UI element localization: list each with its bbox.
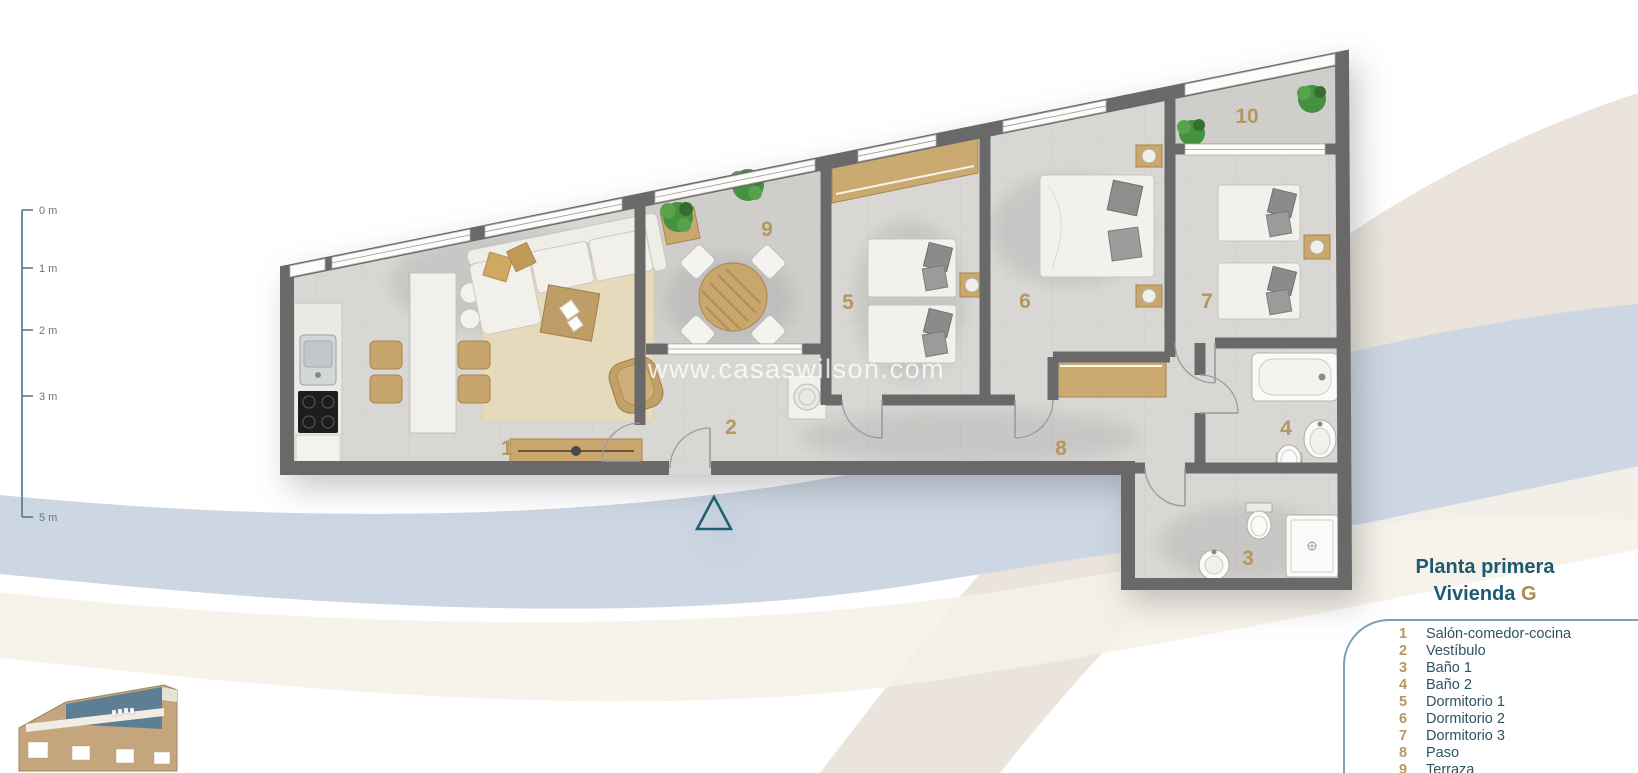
room-label-1: 1 <box>501 437 513 460</box>
legend-item: 5 Dormitorio 1 <box>1399 694 1571 711</box>
scale-label-1: 1 m <box>39 263 57 275</box>
page-title: Planta primera Vivienda G <box>1352 554 1618 608</box>
legend-item: 2 Vestíbulo <box>1399 643 1571 660</box>
shower <box>1286 515 1338 577</box>
legend-item: 3 Baño 1 <box>1399 660 1571 677</box>
pedestal-sink <box>1199 550 1229 581</box>
kitchen-sink <box>300 335 336 385</box>
bathtub <box>1252 353 1338 401</box>
legend: 1 Salón-comedor-cocina 2 Vestíbulo 3 Bañ… <box>1399 626 1571 773</box>
stove <box>298 391 338 433</box>
room-label-8: 8 <box>1055 437 1067 460</box>
legend-item: 8 Paso <box>1399 745 1571 762</box>
scale-bar: 0 m 1 m 2 m 3 m 5 m <box>8 196 78 536</box>
scale-label-0: 0 m <box>39 205 57 217</box>
tv-console <box>510 439 642 463</box>
hall-closet <box>1056 361 1166 397</box>
toilet <box>1246 503 1272 539</box>
nightstand <box>1136 285 1162 307</box>
scale-label-5: 5 m <box>39 512 57 524</box>
room-label-2: 2 <box>725 416 737 439</box>
scale-label-2: 2 m <box>39 325 57 337</box>
unit-label: Vivienda <box>1433 583 1515 605</box>
unit-letter: G <box>1521 583 1537 605</box>
floor-plan: 1 2 3 4 5 6 7 8 9 10 <box>270 45 1360 590</box>
nightstand <box>1304 235 1330 259</box>
coffee-table <box>540 285 600 341</box>
legend-item: 1 Salón-comedor-cocina <box>1399 626 1571 643</box>
legend-item: 9 Terraza <box>1399 762 1571 773</box>
room-label-10: 10 <box>1235 105 1258 128</box>
nightstand <box>1136 145 1162 167</box>
bed-double <box>1040 175 1154 277</box>
watermark: www.casaswilson.com <box>648 354 945 385</box>
bed-single <box>1218 263 1300 319</box>
room-label-3: 3 <box>1242 547 1254 570</box>
kitchen-island <box>410 273 456 433</box>
scale-ticks <box>22 210 33 517</box>
bed-single <box>868 239 956 297</box>
entrance-arrow-icon <box>697 497 731 529</box>
sink-basin <box>1304 420 1336 458</box>
room-label-5: 5 <box>842 291 854 314</box>
room-label-9: 9 <box>761 218 773 241</box>
page: 0 m 1 m 2 m 3 m 5 m <box>0 0 1638 773</box>
legend-item: 4 Baño 2 <box>1399 677 1571 694</box>
key-plan <box>14 672 189 773</box>
legend-item: 6 Dormitorio 2 <box>1399 711 1571 728</box>
room-label-6: 6 <box>1019 290 1031 313</box>
scale-label-3: 3 m <box>39 391 57 403</box>
room-label-4: 4 <box>1280 417 1292 440</box>
title-line2: Vivienda G <box>1352 581 1618 608</box>
legend-item: 7 Dormitorio 3 <box>1399 728 1571 745</box>
bed-single <box>1218 185 1300 241</box>
room-label-7: 7 <box>1201 290 1213 313</box>
title-line1: Planta primera <box>1352 554 1618 581</box>
